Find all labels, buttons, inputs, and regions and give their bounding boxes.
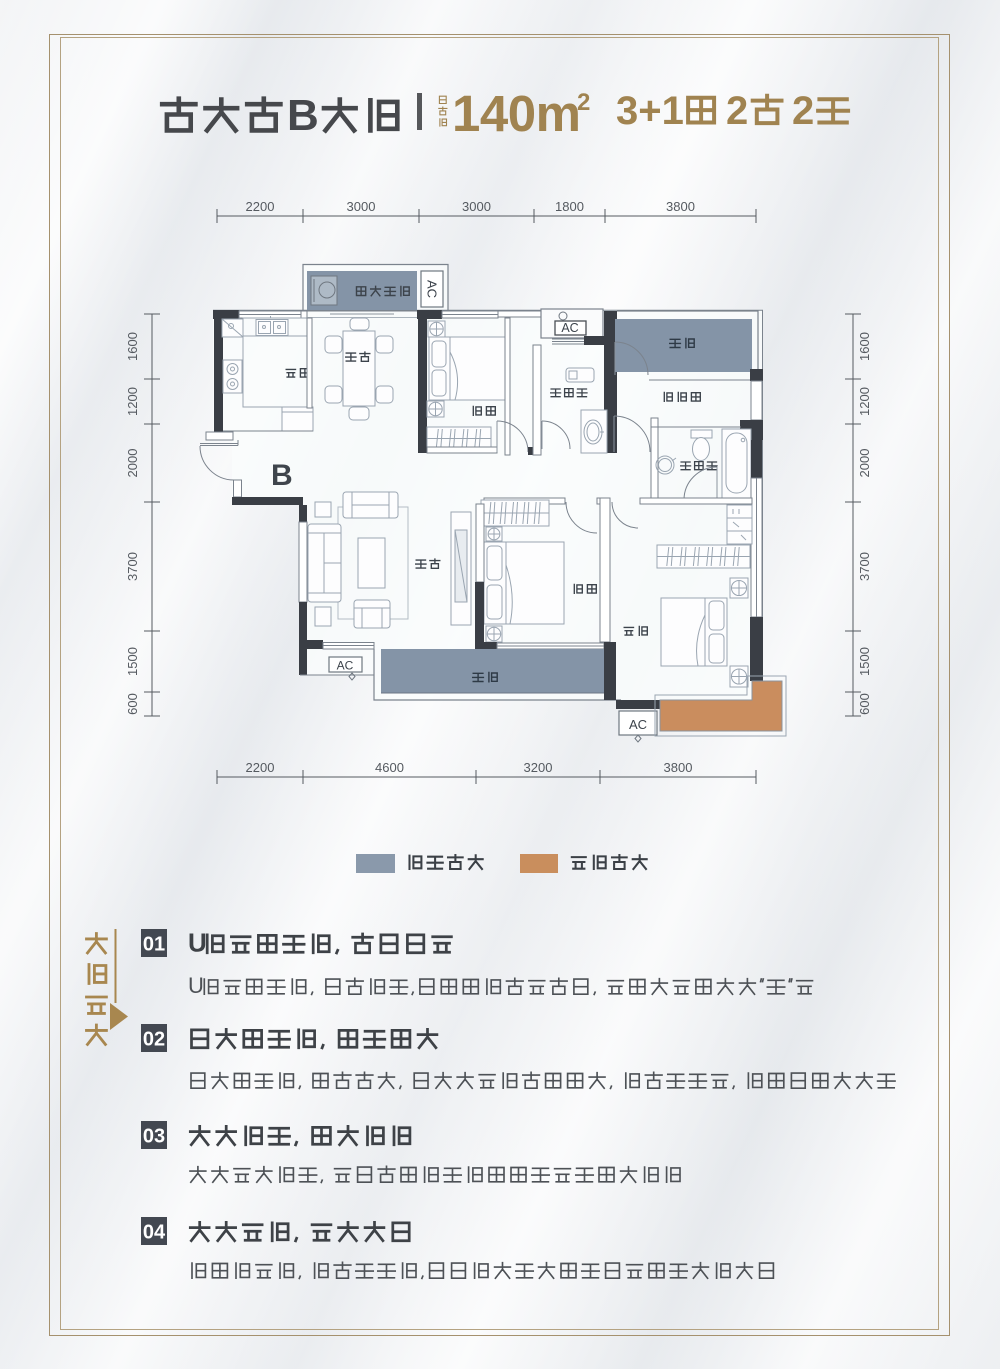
svg-text:3700: 3700 [857,552,872,581]
svg-text:AC: AC [337,659,354,673]
svg-text:4600: 4600 [375,760,404,775]
svg-text:3800: 3800 [664,760,693,775]
svg-text:2: 2 [792,89,814,133]
svg-text:01: 01 [143,934,165,956]
svg-text:140m: 140m [452,85,580,142]
svg-text:B: B [271,459,293,492]
svg-text:3+1: 3+1 [616,89,684,133]
svg-text:1200: 1200 [857,387,872,416]
svg-text:2: 2 [577,89,590,116]
svg-text:3200: 3200 [524,760,553,775]
svg-text:3000: 3000 [462,199,491,214]
svg-text:04: 04 [143,1222,166,1244]
svg-text:B: B [287,91,319,140]
svg-text:1500: 1500 [857,647,872,676]
svg-text:2000: 2000 [857,449,872,478]
svg-text:3700: 3700 [125,552,140,581]
svg-text:1800: 1800 [555,199,584,214]
svg-text:600: 600 [125,693,140,715]
svg-text:AC: AC [561,321,578,335]
svg-text:3800: 3800 [666,199,695,214]
svg-text:1600: 1600 [125,332,140,361]
svg-text:U: U [188,927,207,957]
svg-text:1200: 1200 [125,387,140,416]
svg-text:AC: AC [629,717,647,732]
svg-text:2200: 2200 [246,199,275,214]
svg-text:2200: 2200 [246,760,275,775]
svg-text:2000: 2000 [125,449,140,478]
svg-text:U: U [188,973,204,998]
svg-text:2: 2 [726,89,748,133]
svg-text:03: 03 [143,1126,165,1148]
svg-text:1500: 1500 [125,647,140,676]
svg-text:02: 02 [143,1029,165,1051]
svg-text:600: 600 [857,693,872,715]
svg-text:1600: 1600 [857,332,872,361]
svg-text:AC: AC [425,280,440,298]
svg-text:3000: 3000 [347,199,376,214]
